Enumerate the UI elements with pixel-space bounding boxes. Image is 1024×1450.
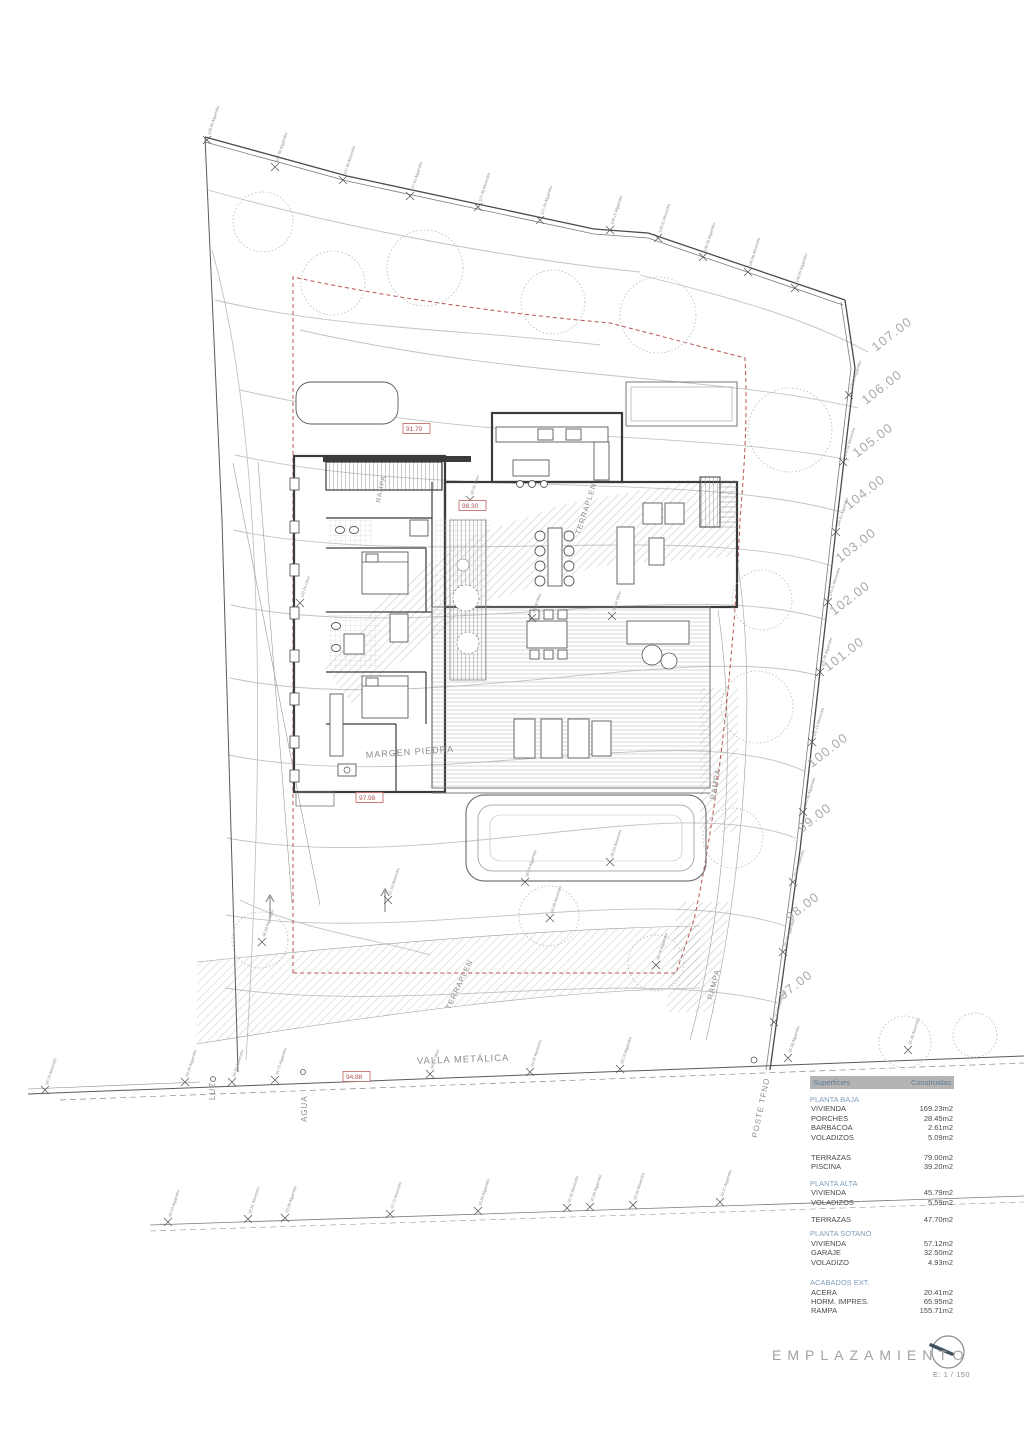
tree-marker: 94.60 Almendro: [228, 1048, 245, 1086]
site-annotation: LUZ: [208, 1082, 217, 1100]
tree-label: 92.92 Almendro: [566, 1174, 580, 1203]
tree-label: 96.08 Almendro: [549, 884, 563, 913]
tree-marker: 95.10 Algarrobo: [616, 1035, 633, 1073]
table-row: VIVIENDA57.12m2: [810, 1239, 954, 1248]
tree-label: 106.66 Almendro: [747, 236, 761, 267]
table-row-value: 65.95m2: [924, 1297, 953, 1306]
tree-marker: 93.27 Algarrobo: [716, 1168, 733, 1206]
table-row: VOLADIZOS5.59m2: [810, 1198, 954, 1207]
tree-label: 96.53 Almendro: [609, 828, 623, 857]
table-header-construidas: Construidas: [911, 1078, 951, 1087]
garden-arrows: [266, 889, 389, 918]
tree-marker: 94.92 Almendro: [526, 1038, 543, 1076]
tree-label: 101.19 Almendro: [811, 706, 825, 737]
table-section-title: PLANTA ALTA: [810, 1179, 954, 1188]
table-row-value: 5.09m2: [928, 1133, 953, 1142]
table-row-label: VIVIENDA: [811, 1239, 846, 1248]
tree-label: 107.40 Algarrobo: [539, 184, 553, 215]
tree-label: 95.58 Algarrobo: [787, 1024, 801, 1053]
tree-label: 106.05 Algarrobo: [794, 252, 808, 283]
table-row-label: BARBACOA: [811, 1123, 853, 1132]
tree-marker: 96.53 Almendro: [606, 828, 623, 866]
table-row-value: 2.61m2: [928, 1123, 953, 1132]
tree-label: 108.31 Almendro: [657, 202, 671, 233]
plot-boundary: [205, 137, 855, 1072]
tree-label: 107.53 Algarrobo: [409, 160, 423, 191]
table-section: PLANTA BAJAVIVIENDA169.23m2PORCHES28.45m…: [810, 1095, 954, 1142]
table-header-superficies: Superficies: [813, 1078, 850, 1087]
table-row: TERRAZAS79.00m2: [810, 1153, 954, 1162]
tree-canopy: [301, 251, 365, 315]
tree-marker: 92.72 Almendro: [386, 1180, 403, 1218]
table-row-value: 47.70m2: [924, 1215, 953, 1224]
tree-marker: 95.96 Almendro: [904, 1016, 921, 1054]
tree-marker: 98.12 Algarrobo: [779, 918, 796, 956]
tree-marker: 101.19 Almendro: [808, 706, 826, 746]
contour-elevation-label: 107.00: [869, 314, 915, 355]
tree-label: 107.65 Almendro: [342, 144, 356, 175]
tree-label: 92.61 Almendro: [247, 1185, 261, 1214]
table-row-value: 32.50m2: [924, 1248, 953, 1257]
tree-label: 99.02 Olivo: [469, 474, 480, 496]
tree-label: 92.95 Algarrobo: [589, 1173, 603, 1202]
tree-label: 92.72 Almendro: [389, 1180, 403, 1209]
tree-marker: 96.58 Algarrobo: [258, 908, 275, 946]
tree-label: 94.60 Almendro: [231, 1048, 245, 1077]
level-tag-value: 91.70: [406, 426, 423, 433]
table-row-label: PORCHES: [811, 1114, 848, 1123]
tree-marker: 94.70 Algarrobo: [271, 1046, 288, 1084]
tree-marker: 92.68 Algarrobo: [281, 1184, 298, 1222]
table-row: VIVIENDA45.79m2: [810, 1188, 954, 1197]
table-row-label: VOLADIZO: [811, 1258, 849, 1267]
table-row-label: HORM. IMPRES.: [811, 1297, 869, 1306]
level-tag: 97.98: [356, 793, 383, 803]
tree-label: 95.10 Algarrobo: [619, 1035, 633, 1064]
tree-label: 95.96 Almendro: [907, 1016, 921, 1045]
level-tag: 98.30: [459, 501, 486, 511]
tree-label: 107.48 Almendro: [477, 171, 491, 202]
table-row: PISCINA39.20m2: [810, 1162, 954, 1171]
table-section: ACABADOS EXT.ACERA20.41m2HORM. IMPRES.65…: [810, 1278, 954, 1316]
tree-label: 94.20 Almendro: [44, 1056, 58, 1085]
tree-marker: 96.08 Almendro: [546, 884, 563, 922]
table-row-value: 4.93m2: [928, 1258, 953, 1267]
tree-marker: 92.92 Almendro: [563, 1174, 580, 1212]
table-row: GARAJE32.50m2: [810, 1248, 954, 1257]
bathroom1-tiles: [328, 520, 372, 546]
site-annotation: VALLA METÁLICA: [417, 1053, 510, 1067]
tree-label: 92.54 Algarrobo: [167, 1188, 181, 1217]
areas-table: Superficies Construidas PLANTA BAJAVIVIE…: [810, 1076, 954, 1316]
tree-marker: 106.05 Algarrobo: [791, 252, 809, 292]
table-row-label: PISCINA: [811, 1162, 841, 1171]
car-outline: [296, 382, 398, 424]
table-row-label: VIVIENDA: [811, 1104, 846, 1113]
table-row-value: 79.00m2: [924, 1153, 953, 1162]
tree-canopy: [732, 570, 792, 630]
tree-marker: 102.20 Olivo: [296, 575, 311, 607]
table-row: RAMPA155.71m2: [810, 1306, 954, 1315]
table-section: PLANTA SOTANOVIVIENDA57.12m2GARAJE32.50m…: [810, 1229, 954, 1267]
tree-marker: 95.58 Algarrobo: [784, 1024, 801, 1062]
tree-canopy: [748, 388, 832, 472]
tree-marker: 107.69 Algarrobo: [271, 131, 289, 171]
contour-elevation-label: 104.00: [842, 472, 888, 513]
site-annotation: AGUA: [300, 1095, 309, 1122]
site-annotation: POSTE TFNO: [750, 1077, 771, 1139]
tree-marker: 96.53 Algarrobo: [521, 848, 538, 886]
table-row-label: VOLADIZOS: [811, 1198, 854, 1207]
tree-marker: 92.84 Algarrobo: [474, 1177, 491, 1215]
tree-canopy: [620, 277, 696, 353]
table-row-value: 57.12m2: [924, 1239, 953, 1248]
level-tag: 91.70: [403, 424, 430, 434]
table-row-value: 155.71m2: [920, 1306, 953, 1315]
table-row-label: RAMPA: [811, 1306, 837, 1315]
scale-label: E: 1 / 150: [933, 1370, 970, 1379]
tree-label: 97.53 Almendro: [387, 866, 401, 895]
tree-label: 106.30 Algarrobo: [702, 221, 716, 252]
tree-marker: 92.54 Algarrobo: [164, 1188, 181, 1226]
tree-canopy: [233, 192, 293, 252]
table-row: PORCHES28.45m2: [810, 1114, 954, 1123]
level-tag: 94.88: [343, 1072, 370, 1082]
table-row-label: VOLADIZOS: [811, 1133, 854, 1142]
table-row-value: 28.45m2: [924, 1114, 953, 1123]
table-row-value: 45.79m2: [924, 1188, 953, 1197]
tree-marker: 94.49 Algarrobo: [181, 1048, 198, 1086]
table-section: PLANTA ALTAVIVIENDA45.79m2VOLADIZOS5.59m…: [810, 1179, 954, 1207]
table-row: TERRAZAS47.70m2: [810, 1215, 954, 1224]
table-section: TERRAZAS79.00m2PISCINA39.20m2: [810, 1153, 954, 1172]
areas-table-body: PLANTA BAJAVIVIENDA169.23m2PORCHES28.45m…: [810, 1095, 954, 1316]
table-row-label: TERRAZAS: [811, 1215, 851, 1224]
tree-label: 94.92 Almendro: [529, 1038, 543, 1067]
tree-label: 93.02 Almendro: [632, 1171, 646, 1200]
tree-label: 100.08 Algarrobo: [802, 776, 816, 807]
table-section-title: PLANTA BAJA: [810, 1095, 954, 1104]
table-section: TERRAZAS47.70m2: [810, 1215, 954, 1224]
utility-pole-tfno: [751, 1057, 757, 1063]
tree-marker: 108.69 Algarrobo: [203, 104, 221, 144]
upper-terrace: [626, 382, 737, 426]
contour-elevation-label: 103.00: [833, 525, 879, 566]
table-row: ACERA20.41m2: [810, 1288, 954, 1297]
table-row-label: ACERA: [811, 1288, 837, 1297]
utility-pole-luz: [211, 1077, 216, 1082]
tree-marker: 92.95 Algarrobo: [586, 1173, 603, 1211]
tree-marker: 93.02 Almendro: [629, 1171, 646, 1209]
tree-canopy: [387, 230, 463, 306]
tree-label: 93.27 Algarrobo: [719, 1168, 733, 1197]
tree-marker: 108.10 Algarrobo: [606, 194, 624, 234]
table-row: HORM. IMPRES.65.95m2: [810, 1297, 954, 1306]
table-section-title: ACABADOS EXT.: [810, 1278, 954, 1287]
table-row-value: 39.20m2: [924, 1162, 953, 1171]
tree-label: 108.10 Algarrobo: [609, 194, 623, 225]
table-row-label: GARAJE: [811, 1248, 841, 1257]
tree-label: 92.84 Algarrobo: [477, 1177, 491, 1206]
tree-label: 96.53 Algarrobo: [524, 848, 538, 877]
utility-pole-agua: [301, 1070, 306, 1075]
table-row: VIVIENDA169.23m2: [810, 1104, 954, 1113]
areas-table-header: Superficies Construidas: [810, 1076, 954, 1089]
table-row-value: 20.41m2: [924, 1288, 953, 1297]
tree-marker: 99.02 Olivo: [466, 474, 480, 504]
table-row-label: VIVIENDA: [811, 1188, 846, 1197]
tree-canopy: [953, 1013, 997, 1057]
tree-label: 92.68 Algarrobo: [284, 1184, 298, 1213]
tree-canopy: [521, 270, 585, 334]
level-tag-value: 94.88: [346, 1074, 363, 1081]
table-row-value: 169.23m2: [920, 1104, 953, 1113]
table-section-title: PLANTA SOTANO: [810, 1229, 954, 1238]
table-row: VOLADIZOS5.09m2: [810, 1133, 954, 1142]
level-tag-value: 98.30: [462, 503, 479, 510]
table-row: VOLADIZO4.93m2: [810, 1258, 954, 1267]
contour-elevation-label: 105.00: [850, 420, 896, 461]
sheet-title: EMPLAZAMIENTO: [772, 1347, 970, 1363]
tree-marker: 92.61 Almendro: [244, 1185, 261, 1223]
tree-label: 94.49 Algarrobo: [184, 1048, 198, 1077]
tree-label: 108.69 Algarrobo: [206, 104, 220, 135]
table-row-value: 5.59m2: [928, 1198, 953, 1207]
entry-step: [296, 792, 334, 806]
tree-label: 102.20 Olivo: [299, 575, 311, 599]
tree-marker: 99.03 Almendro: [789, 848, 806, 886]
table-row: BARBACOA2.61m2: [810, 1123, 954, 1132]
table-row-label: TERRAZAS: [811, 1153, 851, 1162]
tree-marker: 97.53 Almendro: [384, 866, 401, 904]
contour-elevation-label: 106.00: [859, 367, 905, 408]
tree-label: 96.58 Algarrobo: [261, 908, 275, 937]
contour-elevation-label: 99.00: [795, 800, 835, 836]
tree-label: 103.41 Almendro: [827, 566, 841, 597]
level-tag-value: 97.98: [359, 795, 376, 802]
tree-label: 94.70 Algarrobo: [274, 1046, 288, 1075]
